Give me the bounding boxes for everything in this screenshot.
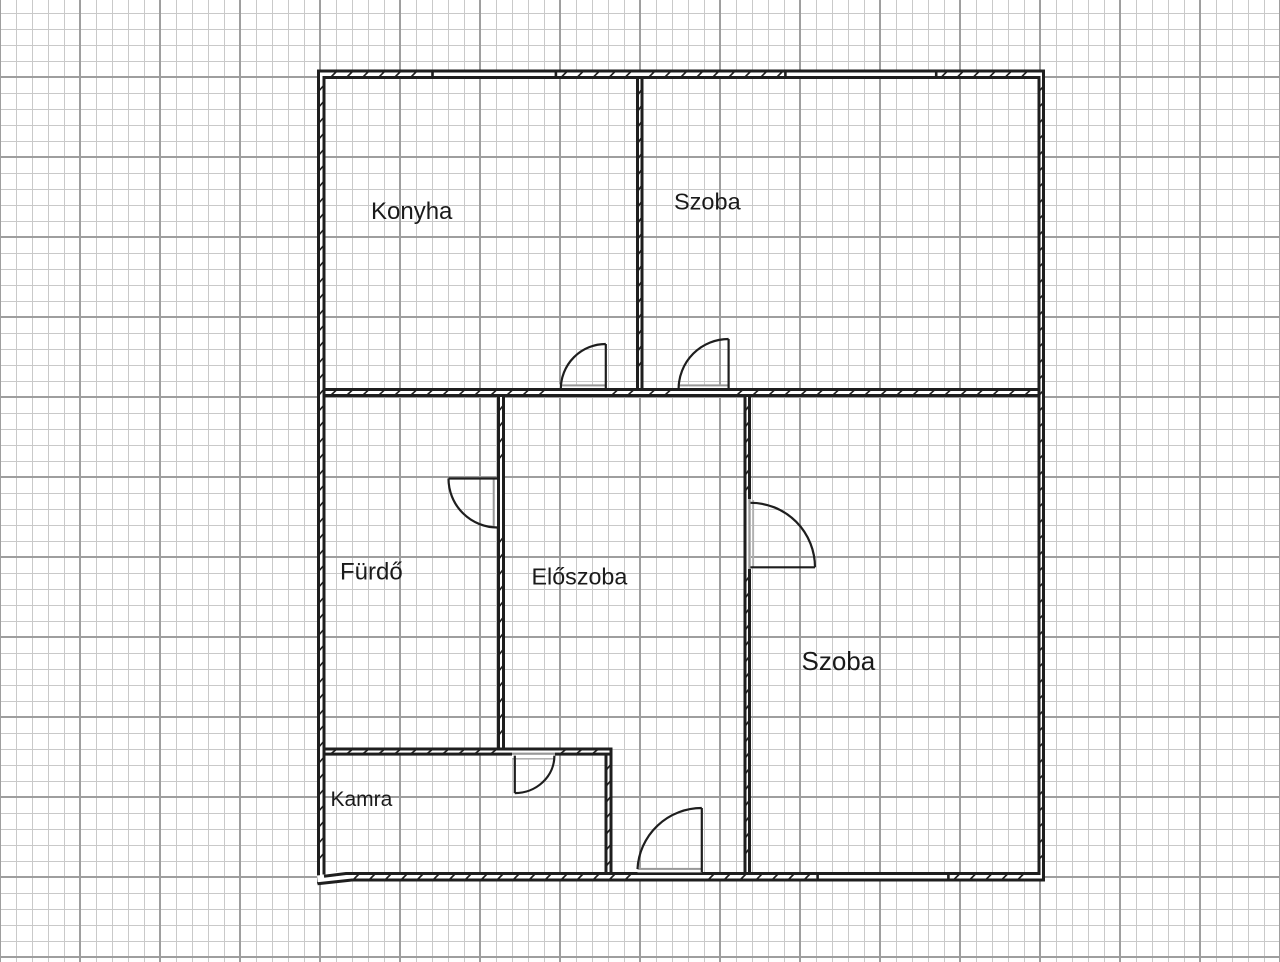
svg-text:Fürdő: Fürdő	[340, 558, 403, 585]
svg-text:Szoba: Szoba	[674, 189, 742, 215]
svg-text:Konyha: Konyha	[371, 198, 453, 225]
svg-text:Előszoba: Előszoba	[532, 564, 628, 590]
svg-text:Kamra: Kamra	[331, 788, 393, 811]
svg-text:Szoba: Szoba	[802, 646, 876, 676]
